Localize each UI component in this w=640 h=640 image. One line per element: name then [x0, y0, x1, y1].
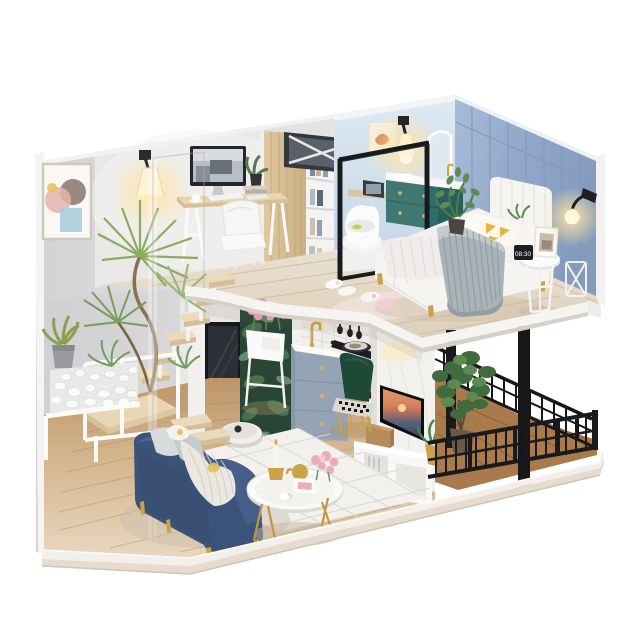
- svg-text:08:30: 08:30: [515, 251, 532, 258]
